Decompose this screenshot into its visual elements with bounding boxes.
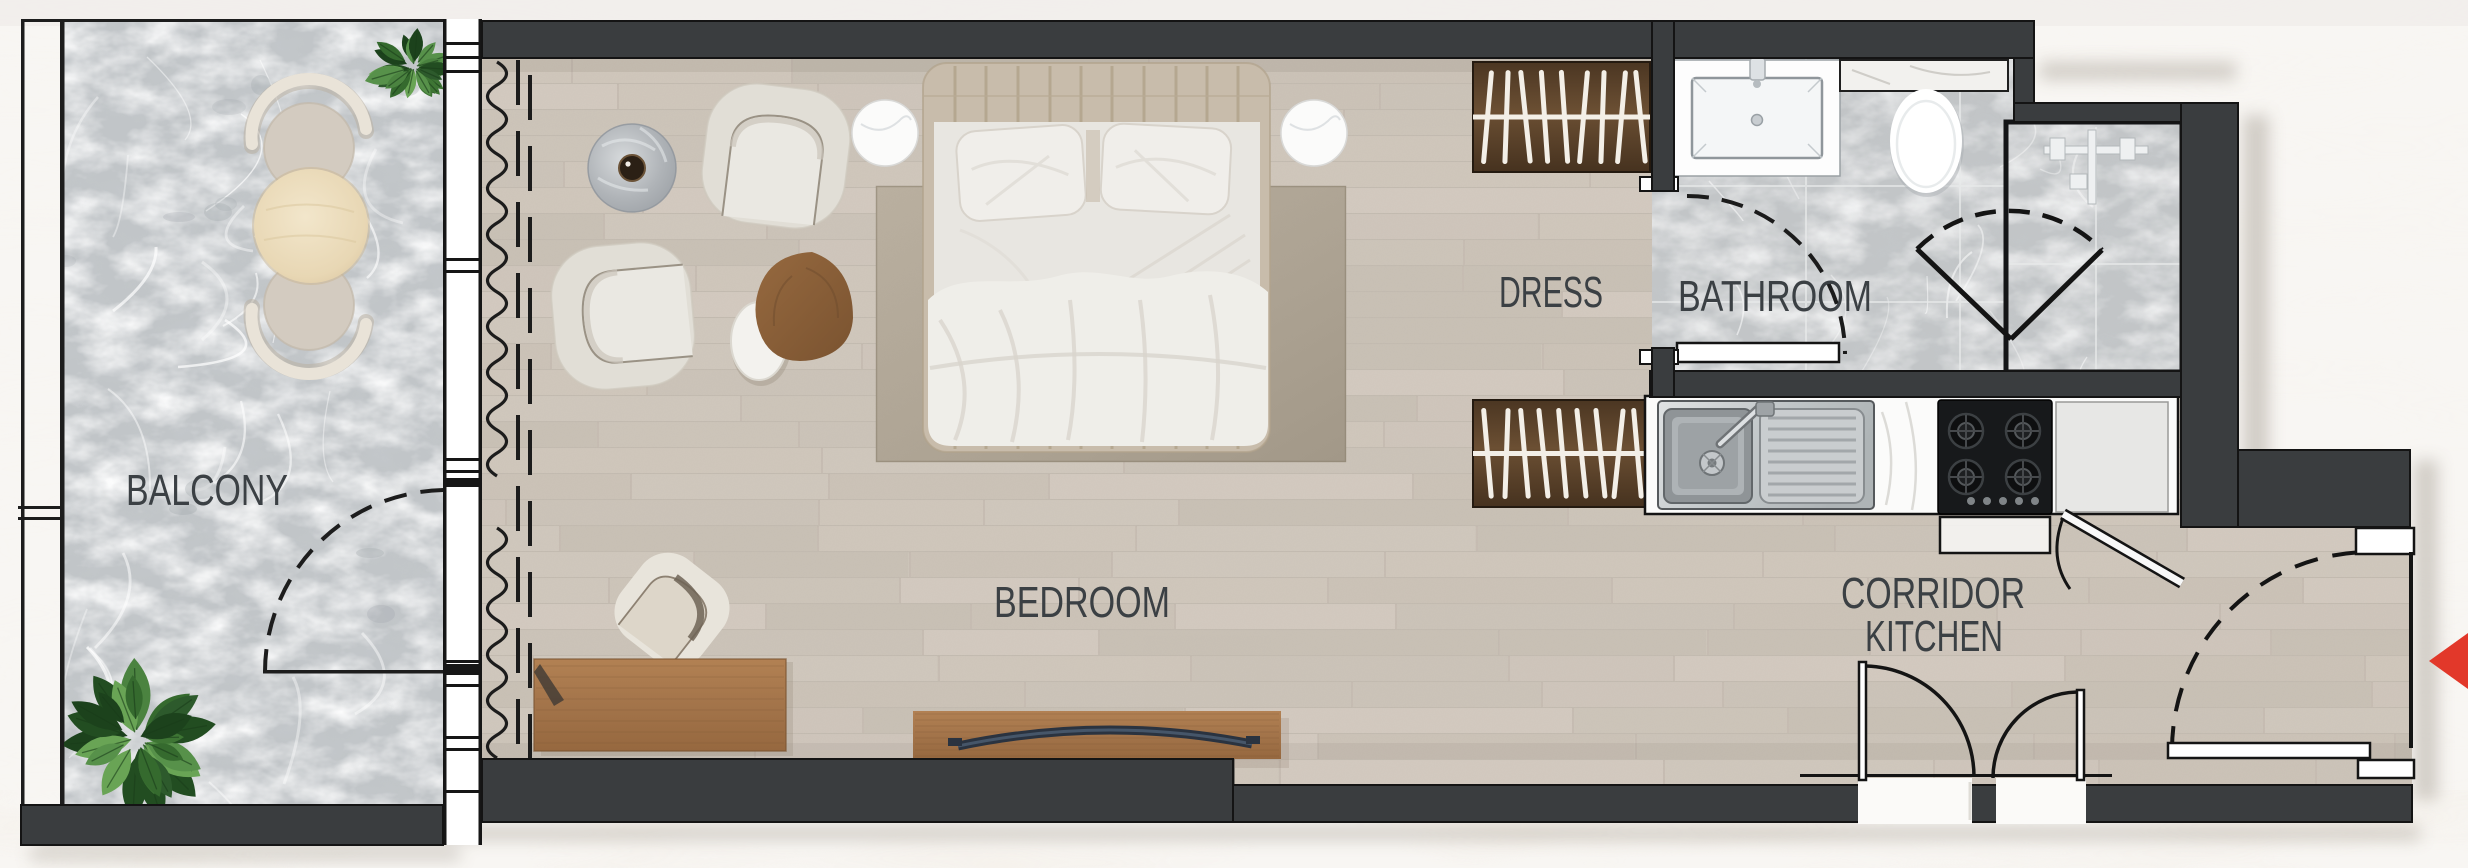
svg-text:BEDROOM: BEDROOM bbox=[994, 578, 1170, 627]
svg-text:BALCONY: BALCONY bbox=[126, 466, 288, 515]
svg-text:CORRIDOR: CORRIDOR bbox=[1841, 569, 2025, 618]
svg-text:KITCHEN: KITCHEN bbox=[1865, 612, 2003, 661]
svg-text:DRESS: DRESS bbox=[1499, 268, 1603, 317]
svg-text:BATHROOM: BATHROOM bbox=[1678, 272, 1872, 321]
